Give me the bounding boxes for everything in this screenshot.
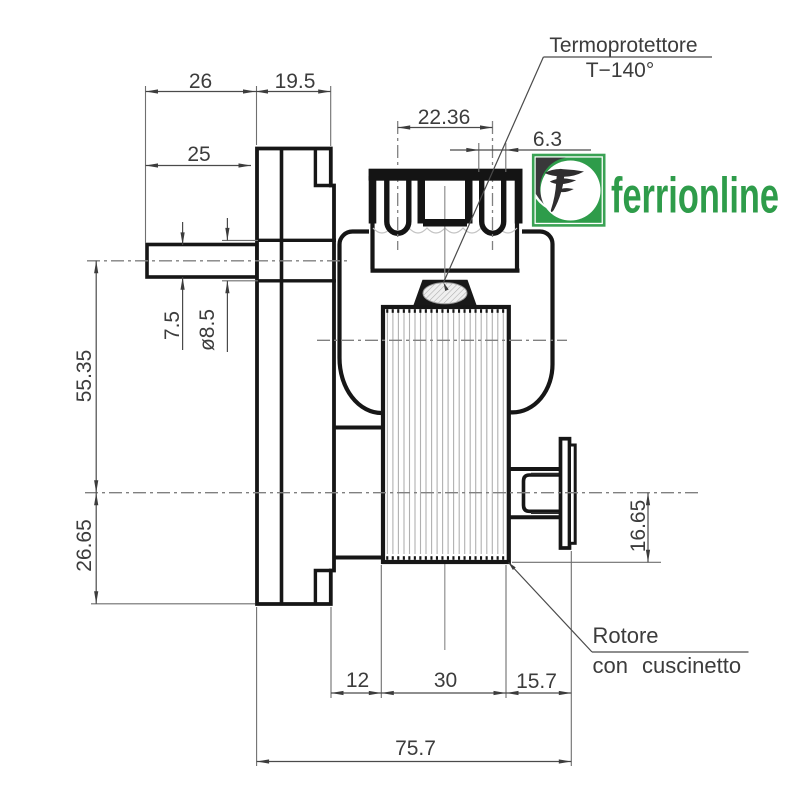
svg-text:26.65: 26.65 <box>73 519 96 572</box>
svg-text:6.3: 6.3 <box>533 128 562 151</box>
svg-text:ferrionline: ferrionline <box>611 168 779 224</box>
svg-text:19.5: 19.5 <box>275 70 316 93</box>
svg-text:cuscinetto: cuscinetto <box>642 653 741 678</box>
svg-text:25: 25 <box>187 143 210 166</box>
svg-text:12: 12 <box>346 669 369 692</box>
svg-text:75.7: 75.7 <box>395 737 436 760</box>
svg-text:15.7: 15.7 <box>516 670 557 693</box>
svg-text:22.36: 22.36 <box>418 106 471 129</box>
svg-text:T−140°: T−140° <box>586 59 655 82</box>
svg-text:26: 26 <box>189 70 212 93</box>
svg-text:Termoprotettore: Termoprotettore <box>549 34 697 57</box>
svg-text:55.35: 55.35 <box>73 350 96 403</box>
svg-text:con: con <box>593 653 628 678</box>
svg-text:ø8.5: ø8.5 <box>196 309 219 351</box>
svg-text:Rotore: Rotore <box>593 623 659 648</box>
svg-text:7.5: 7.5 <box>161 311 184 340</box>
svg-text:30: 30 <box>434 669 457 692</box>
svg-text:16.65: 16.65 <box>627 500 650 553</box>
